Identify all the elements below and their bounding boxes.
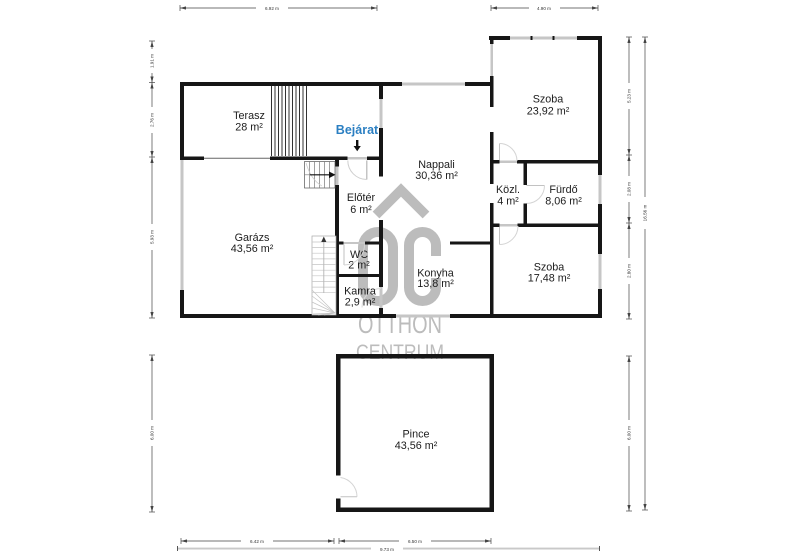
svg-text:6.92 m: 6.92 m (265, 6, 279, 11)
svg-text:5.23 m: 5.23 m (627, 89, 632, 103)
svg-text:16.56 m: 16.56 m (643, 205, 648, 222)
svg-text:28 m²: 28 m² (235, 121, 263, 133)
svg-text:17,48 m²: 17,48 m² (528, 272, 571, 284)
svg-text:6.50 m: 6.50 m (408, 539, 422, 544)
svg-text:30,36 m²: 30,36 m² (415, 170, 458, 182)
svg-text:8,06 m²: 8,06 m² (545, 195, 582, 207)
svg-text:23,92 m²: 23,92 m² (527, 105, 570, 117)
svg-text:43,56 m²: 43,56 m² (395, 440, 438, 452)
svg-text:Pince: Pince (402, 428, 429, 440)
svg-text:6.00 m: 6.00 m (627, 426, 632, 440)
svg-text:1.91 m: 1.91 m (150, 54, 155, 68)
svg-text:2.76 m: 2.76 m (150, 113, 155, 127)
svg-text:2.08 m: 2.08 m (627, 182, 632, 196)
svg-text:2 m²: 2 m² (348, 259, 370, 271)
svg-text:Előtér: Előtér (347, 192, 376, 204)
svg-text:9.73 m: 9.73 m (380, 547, 394, 552)
svg-text:2,9 m²: 2,9 m² (345, 296, 376, 308)
svg-text:Szoba: Szoba (533, 93, 564, 105)
svg-text:43,56 m²: 43,56 m² (231, 243, 274, 255)
svg-text:13,8 m²: 13,8 m² (417, 278, 454, 290)
svg-text:4 m²: 4 m² (497, 195, 519, 207)
svg-text:Fürdő: Fürdő (549, 184, 577, 196)
svg-text:6 m²: 6 m² (350, 204, 372, 216)
svg-text:6.42 m: 6.42 m (250, 539, 264, 544)
svg-text:CENTRUM: CENTRUM (356, 341, 444, 364)
svg-text:5.93 m: 5.93 m (150, 230, 155, 244)
svg-text:4.90 m: 4.90 m (537, 6, 551, 11)
svg-text:6.00 m: 6.00 m (150, 426, 155, 440)
svg-text:OTTHON: OTTHON (358, 309, 442, 339)
svg-text:Terasz: Terasz (233, 110, 265, 122)
svg-text:Bejárat: Bejárat (336, 123, 379, 137)
svg-text:2.80 m: 2.80 m (627, 264, 632, 278)
svg-text:Közl.: Közl. (496, 184, 520, 196)
